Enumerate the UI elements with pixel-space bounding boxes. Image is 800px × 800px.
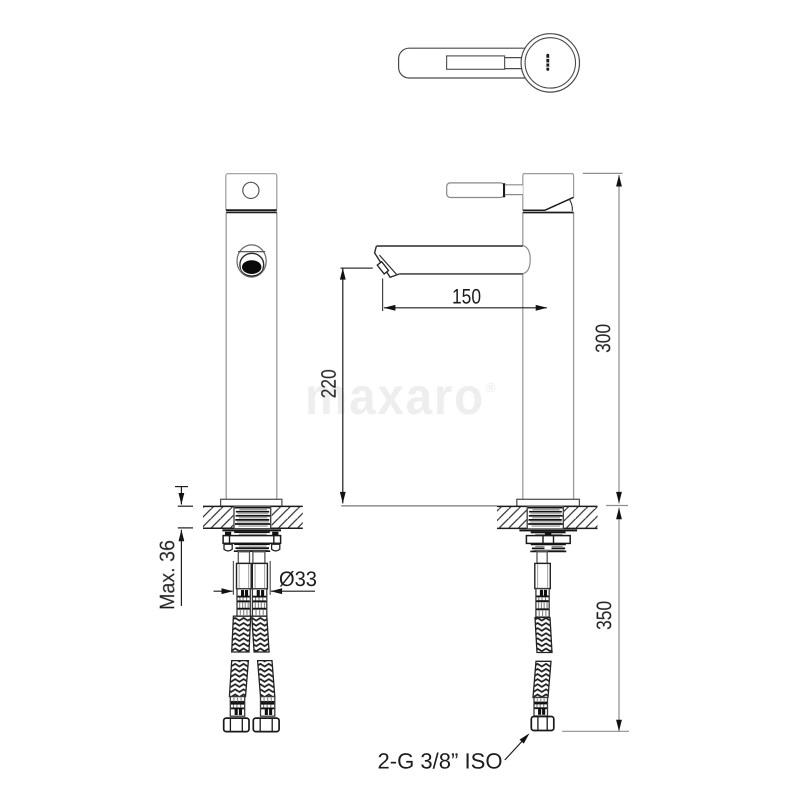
svg-text:Max. 36: Max. 36 bbox=[156, 540, 179, 610]
svg-text:300: 300 bbox=[592, 324, 615, 353]
svg-text:Ø33: Ø33 bbox=[279, 568, 317, 591]
svg-text:®: ® bbox=[486, 380, 496, 395]
svg-text:220: 220 bbox=[318, 369, 341, 398]
svg-text:350: 350 bbox=[593, 601, 616, 630]
svg-text:2-G 3/8” ISO: 2-G 3/8” ISO bbox=[378, 749, 503, 774]
svg-text:150: 150 bbox=[452, 286, 481, 309]
